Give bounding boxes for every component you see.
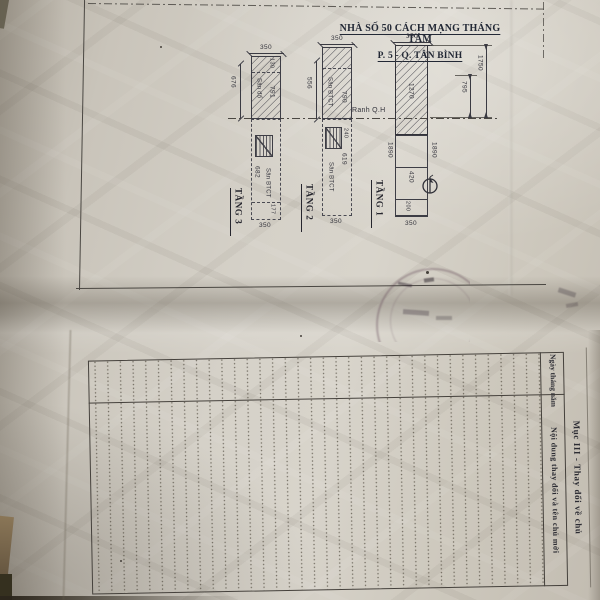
floor2-plan: Sân BTCT 790 240 619 Sân BTCT [322,47,352,216]
floor1-yard-dim: 420 [407,171,414,197]
table-header-date: Ngày tháng năm [541,353,565,394]
table-empty-rows [94,353,544,593]
floor1-yard-divider [396,167,427,168]
extension-line-mid [455,75,477,76]
offset-dim-line [470,75,471,117]
total-dim: 1750 [476,55,483,83]
paper-fold-edge-left [62,330,71,600]
table-section-title: Mục III - Thay đổi về chủ [565,377,590,577]
table-header-content: Nội dung thay đổi và tên chủ mới [542,395,568,585]
floor2-roof-dim: 790 [340,91,347,117]
floor2-yard-dim: 619 [340,153,347,177]
floor3-roof-divider [252,72,280,73]
ownership-table-page: Ngày tháng năm Nội dung thay đổi và tên … [84,347,594,596]
background-corner-bottom-left [0,574,12,600]
floor3-back-divider [252,202,280,203]
floor1-label: TẦNG 1 [371,180,385,228]
drawing-frame-bottom [76,284,546,289]
total-dim-line [486,45,487,117]
photo-of-document: NHÀ SỐ 50 CÁCH MẠNG THÁNG TÁM P. 5 - Q. … [0,0,600,600]
floor1-side-dim-right: 1890 [430,142,437,176]
boundary-label: Ranh Q.H [352,107,386,114]
floor2-roof-divider [323,68,351,69]
floor3-back-dim: 177 [269,204,275,218]
floor3-roof-dim: 791 [268,86,275,116]
floor3-width-top: 350 [244,45,288,52]
floor2-yard-label: Sân BTCT [327,162,334,206]
background-edge-bottom [0,596,240,600]
floor2-width-dim-line [320,44,355,45]
drawing-frame-top [88,3,546,10]
floor2-width-top: 350 [315,36,359,43]
floor1-back-divider [396,199,427,200]
extension-line-boundary [430,117,492,118]
floor3-width-dim-line [249,53,284,54]
floor1-back-dim: 200 [404,201,410,215]
staircase-icon [325,127,342,149]
background-edge-bottom-left [0,515,14,600]
staircase-icon [255,135,273,157]
drawing-frame-left [79,0,85,290]
floor1-side-dim-left: 1890 [386,142,393,176]
drawing-frame-right [543,2,544,60]
offset-dim: 795 [460,81,467,103]
floor3-width-bottom: 350 [243,223,287,230]
table-header-date-label: Ngày tháng năm [547,353,558,393]
floor3-top-cell-dim: 130 [268,58,274,71]
floor1-width-bottom: 350 [389,221,433,228]
floor3-roof-label: Sân đổ [255,78,262,116]
floor1-width-dim-line [393,42,431,43]
floor2-height-dim-line [316,61,317,119]
floor1-built-dim: 1270 [407,83,414,117]
table-section-title-label: Mục III - Thay đổi về chủ [572,421,584,535]
floor3-plan: 130 Sân đổ 791 682 Sân BTCT 177 [251,56,281,220]
north-arrow-icon [420,174,440,196]
drawing-sheet: NHÀ SỐ 50 CÁCH MẠNG THÁNG TÁM P. 5 - Q. … [0,0,600,345]
extension-line-top [430,45,492,46]
floor2-stair-dim: 240 [342,128,348,150]
floor2-width-bottom: 350 [314,219,358,226]
floor2-label: TẦNG 2 [301,184,315,232]
table-header-content-label: Nội dung thay đổi và tên chủ mới [549,427,560,554]
floor2-roof-label: Sân BTCT [326,77,333,117]
floor2-height-dim: 556 [305,77,312,103]
floor3-height-dim: 676 [229,76,236,102]
floor3-label: TẦNG 3 [230,188,244,236]
floor3-yard-dim: 682 [253,166,260,194]
floor1-width-top: 350 [389,34,435,41]
floor3-height-dim-line [240,64,241,118]
